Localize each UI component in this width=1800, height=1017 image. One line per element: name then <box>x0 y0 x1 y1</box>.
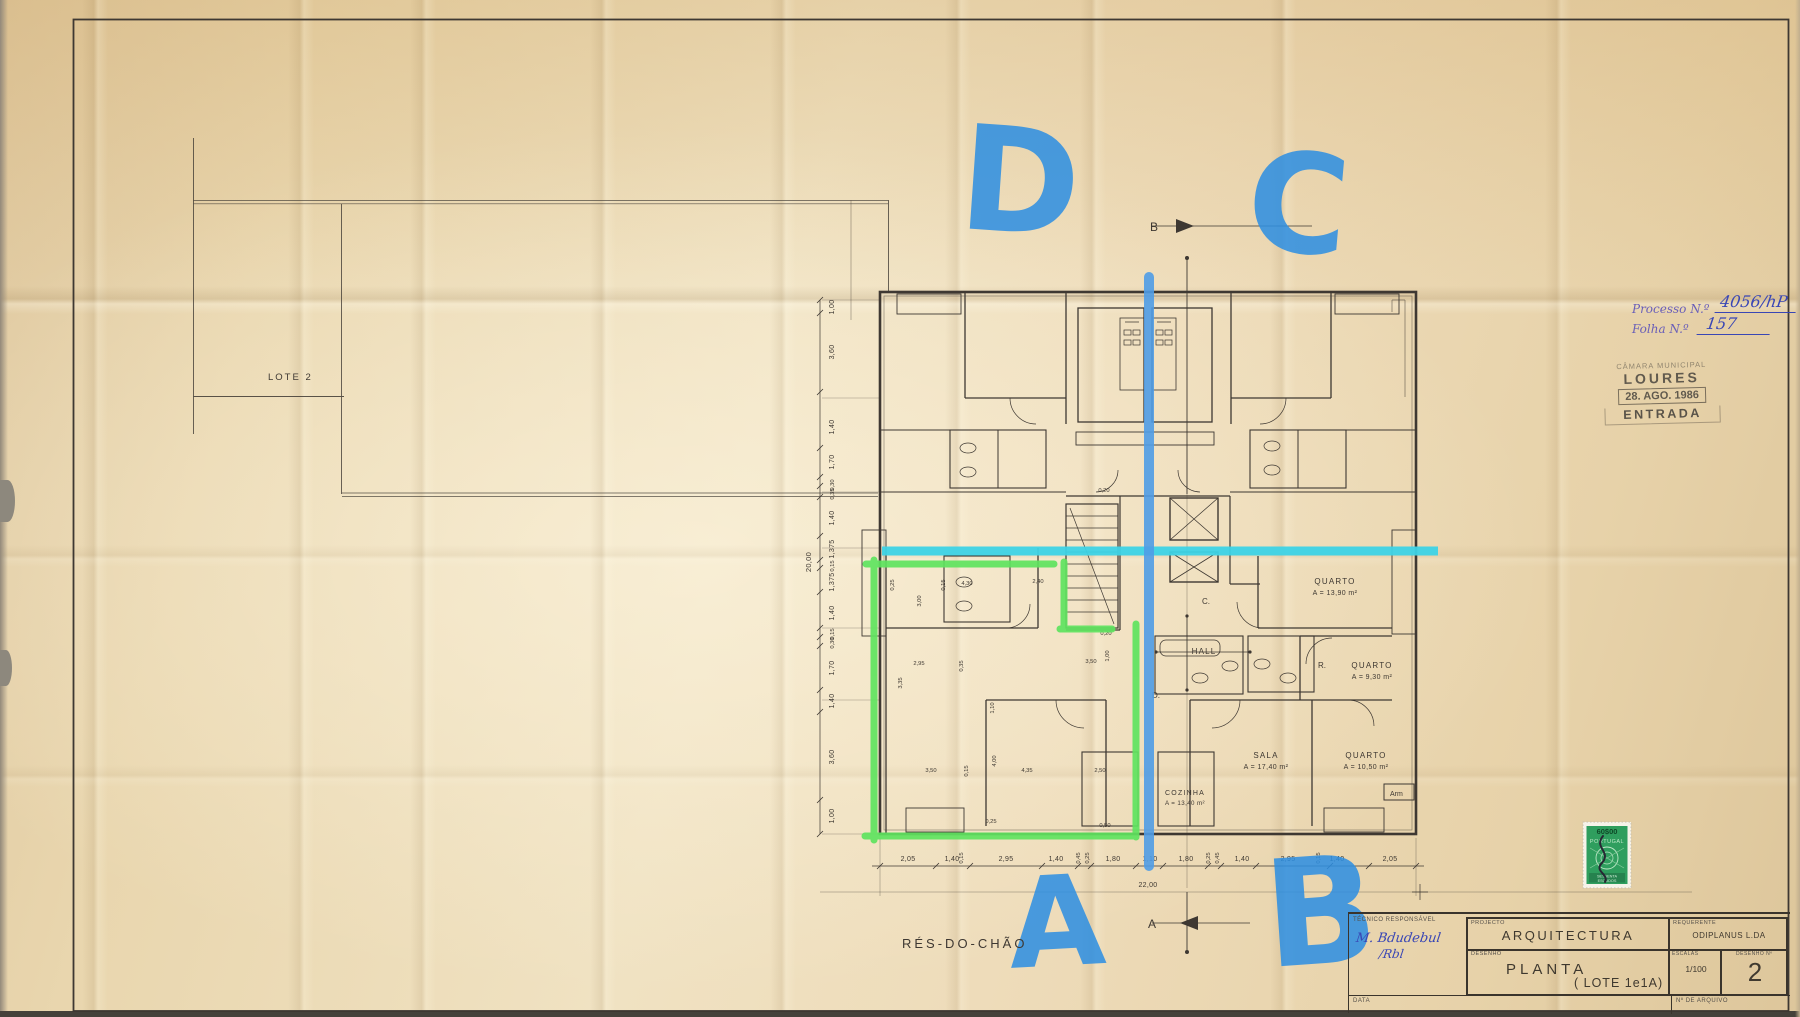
projecto-label: PROJECTO <box>1471 920 1505 926</box>
blueprint-sheet: QUARTO A = 13,90 m² QUARTO A = 9,30 m² S… <box>0 0 1800 1017</box>
site-boundary-lines <box>193 138 1405 497</box>
dim-label: 3,00 <box>917 595 923 606</box>
kitchen-counter <box>1152 318 1176 390</box>
marker-letter-d: D <box>954 94 1086 271</box>
dim-label: 0,25 <box>890 579 896 590</box>
tax-stamp-denom1: SESSENTA <box>1597 875 1617 879</box>
processo-label: Processo N.º <box>1632 302 1709 316</box>
registry-block: Processo N.º 4056/hP Folha N.º 157 <box>1632 296 1800 340</box>
dim-label: 2,05 <box>1383 856 1398 863</box>
title-block-bottom-strip: DATA Nº DE ARQUIVO <box>1349 995 1790 1015</box>
dim-label: 1,80 <box>1106 856 1121 863</box>
dim-label: 1,00 <box>829 300 836 315</box>
dim-label: 2,50 <box>1094 768 1105 774</box>
requerente-label: REQUERENTE <box>1673 920 1716 926</box>
dim-label: 1,10 <box>990 702 996 713</box>
dim-label: 0,20 <box>1098 488 1109 494</box>
room-area: A = 17,40 m² <box>1244 764 1289 771</box>
dim-label: 0,15 <box>941 579 947 590</box>
interior-walls-lower-left <box>886 548 1106 834</box>
marker-letter-a: A <box>1004 848 1108 998</box>
dim-label: 0,25 <box>1206 852 1212 863</box>
dim-label: 0,35 <box>830 488 836 499</box>
section-ref-r: R. <box>1318 661 1326 670</box>
dim-label: 3,60 <box>829 750 836 765</box>
dim-label: 1,70 <box>829 661 836 676</box>
tecnico-label: TÉCNICO RESPONSÁVEL <box>1353 917 1436 923</box>
floor-plan: QUARTO A = 13,90 m² QUARTO A = 9,30 m² S… <box>804 219 1692 954</box>
dim-label: 4,30 <box>961 581 972 587</box>
balcony-brick <box>1335 294 1399 314</box>
dim-label: 1,40 <box>1235 856 1250 863</box>
dim-label: 3,35 <box>898 677 904 688</box>
kitchen-room <box>1078 308 1144 422</box>
dim-label: 0,15 <box>830 560 836 571</box>
dim-label: 1,375 <box>829 572 836 591</box>
signature-handwritten-2: /Rbl <box>1378 947 1405 961</box>
dim-label: 1,40 <box>945 856 960 863</box>
tax-stamp: 60$00 PORTUGAL SESSENTA ESCUDOS <box>1583 822 1631 888</box>
numero-value: 2 <box>1722 957 1788 988</box>
section-mark-a: A <box>1148 917 1156 931</box>
room-area: A = 13,90 m² <box>1313 590 1358 597</box>
title-block: TÉCNICO RESPONSÁVEL M. Bdudebul /Rbl PRO… <box>1348 912 1790 1013</box>
room-area: A = 9,30 m² <box>1352 674 1393 681</box>
dim-label: 2,95 <box>913 661 924 667</box>
folha-label: Folha N.º <box>1632 322 1689 336</box>
stair-core <box>1066 504 1118 628</box>
dim-label: 0,25 <box>985 819 996 825</box>
dim-label: 2,40 <box>1032 579 1043 585</box>
dim-label: 3,50 <box>1085 659 1096 665</box>
dim-label: 0,15 <box>959 852 965 863</box>
dim-label: 0,35 <box>959 660 965 671</box>
tax-stamp-country: PORTUGAL <box>1590 839 1624 845</box>
sheet-border <box>74 20 1789 1012</box>
room-name: COZINHA <box>1165 790 1205 797</box>
tax-stamp-denom2: ESCUDOS <box>1598 879 1617 883</box>
room-name: QUARTO <box>1351 661 1392 670</box>
lote-label: LOTE 2 <box>268 372 313 383</box>
dim-label: 1,375 <box>829 539 836 558</box>
dim-label: 0,45 <box>1215 852 1221 863</box>
entry-stamp-city: LOURES <box>1603 368 1719 387</box>
room-area: A = 10,50 m² <box>1344 764 1389 771</box>
entry-stamp-word: ENTRADA <box>1604 405 1720 425</box>
plan-title: RÉS-DO-CHÃO <box>902 936 1027 951</box>
balcony-brick <box>1392 530 1416 634</box>
data-label: DATA <box>1353 998 1370 1004</box>
escalas-label: ESCALAS <box>1672 951 1699 957</box>
desenho-lote: ( LOTE 1e1A) <box>1574 976 1663 990</box>
dim-label: 4,00 <box>992 755 998 766</box>
tax-stamp-value: 60$00 <box>1597 827 1618 836</box>
section-mark-b: B <box>1150 220 1158 234</box>
folha-value-handwritten: 157 <box>1697 314 1772 335</box>
room-name: SALA <box>1253 751 1278 760</box>
bathroom <box>1155 636 1243 694</box>
dim-label: 1,80 <box>1179 856 1194 863</box>
dim-label: 1,40 <box>829 511 836 526</box>
section-ref-c: C. <box>1202 597 1210 606</box>
desenho-label: DESENHO <box>1471 951 1502 957</box>
dim-label: 3,60 <box>829 345 836 360</box>
dim-label: 0,50 <box>1099 823 1110 829</box>
dimension-lines <box>817 297 1692 900</box>
dim-total-height: 20,00 <box>804 552 813 572</box>
drawing-canvas: QUARTO A = 13,90 m² QUARTO A = 9,30 m² S… <box>0 0 1800 1017</box>
bathroom <box>1248 636 1314 692</box>
closet-label: Arm <box>1390 791 1403 798</box>
hall-label: HALL <box>1192 647 1217 656</box>
arquivo-label: Nº DE ARQUIVO <box>1676 998 1728 1004</box>
kitchen-counter <box>1120 318 1144 390</box>
projecto-value: ARQUITECTURA <box>1468 928 1668 943</box>
dim-label: 1,00 <box>829 809 836 824</box>
kitchen-room <box>1158 752 1214 826</box>
dim-label: 0,15 <box>964 765 970 776</box>
dim-total-width: 22,00 <box>1138 882 1157 889</box>
interior-walls-lower-right <box>1190 556 1392 826</box>
processo-value-handwritten: 4056/hP <box>1715 292 1799 313</box>
dim-label: 0,30 <box>830 637 836 648</box>
balcony-brick <box>906 808 964 832</box>
room-name: QUARTO <box>1345 751 1386 760</box>
entry-stamp: CÂMARA MUNICIPAL LOURES 28. AGO. 1986 EN… <box>1603 359 1721 425</box>
room-name: QUARTO <box>1314 577 1355 586</box>
marker-letter-c: C <box>1241 120 1356 289</box>
room-area: A = 13,40 m² <box>1165 800 1205 807</box>
escalas-value: 1/100 <box>1670 964 1722 974</box>
elevator-shafts <box>1170 498 1218 582</box>
dim-label: 1,70 <box>829 455 836 470</box>
dim-label: 1,40 <box>829 420 836 435</box>
title-block-main-box: PROJECTO ARQUITECTURA REQUERENTE ODIPLAN… <box>1466 917 1788 996</box>
dim-label: 1,00 <box>1105 650 1111 661</box>
dim-label: 3,50 <box>925 768 936 774</box>
dim-label: 2,05 <box>901 856 916 863</box>
kitchen-room <box>1082 752 1138 826</box>
kitchen-room <box>1152 308 1212 422</box>
balcony-brick <box>897 294 961 314</box>
dim-label: 4,35 <box>1021 768 1032 774</box>
dim-label: 1,40 <box>829 606 836 621</box>
dim-label: 1,40 <box>829 694 836 709</box>
requerente-value: ODIPLANUS L.DA <box>1670 931 1788 940</box>
signature-handwritten: M. Bdudebul <box>1355 931 1442 946</box>
entry-stamp-date: 28. AGO. 1986 <box>1618 387 1706 405</box>
